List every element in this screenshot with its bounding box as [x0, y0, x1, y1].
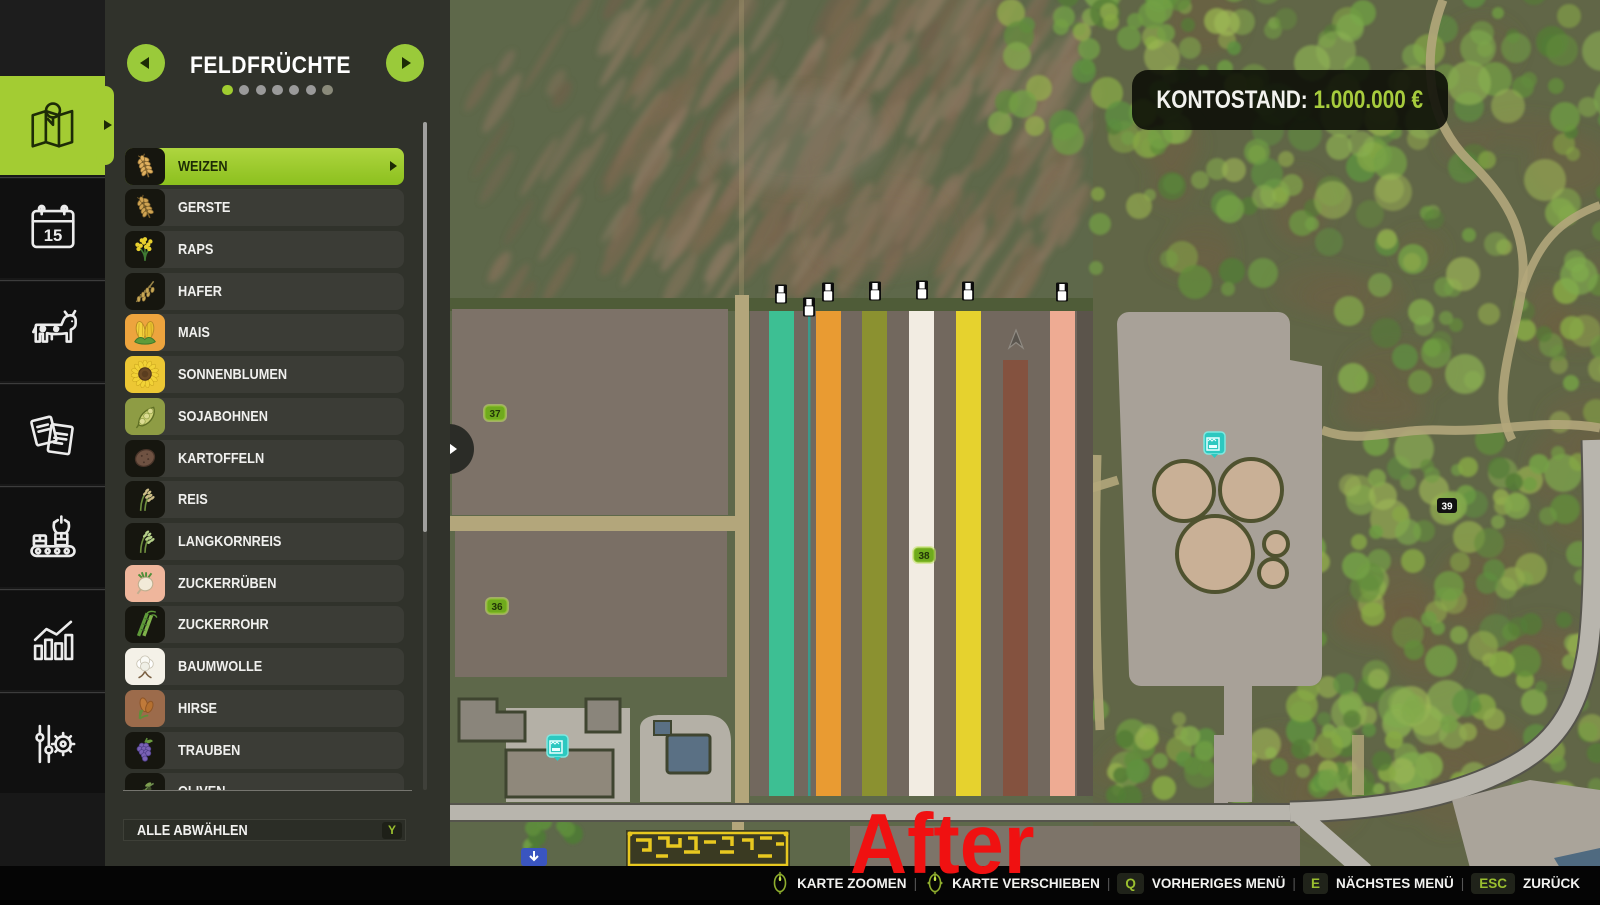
svg-text:15: 15	[43, 225, 62, 244]
svg-text:38: 38	[918, 551, 930, 562]
svg-text:37: 37	[489, 409, 501, 420]
svg-text:39: 39	[1441, 502, 1453, 513]
svg-text:36: 36	[491, 602, 503, 613]
